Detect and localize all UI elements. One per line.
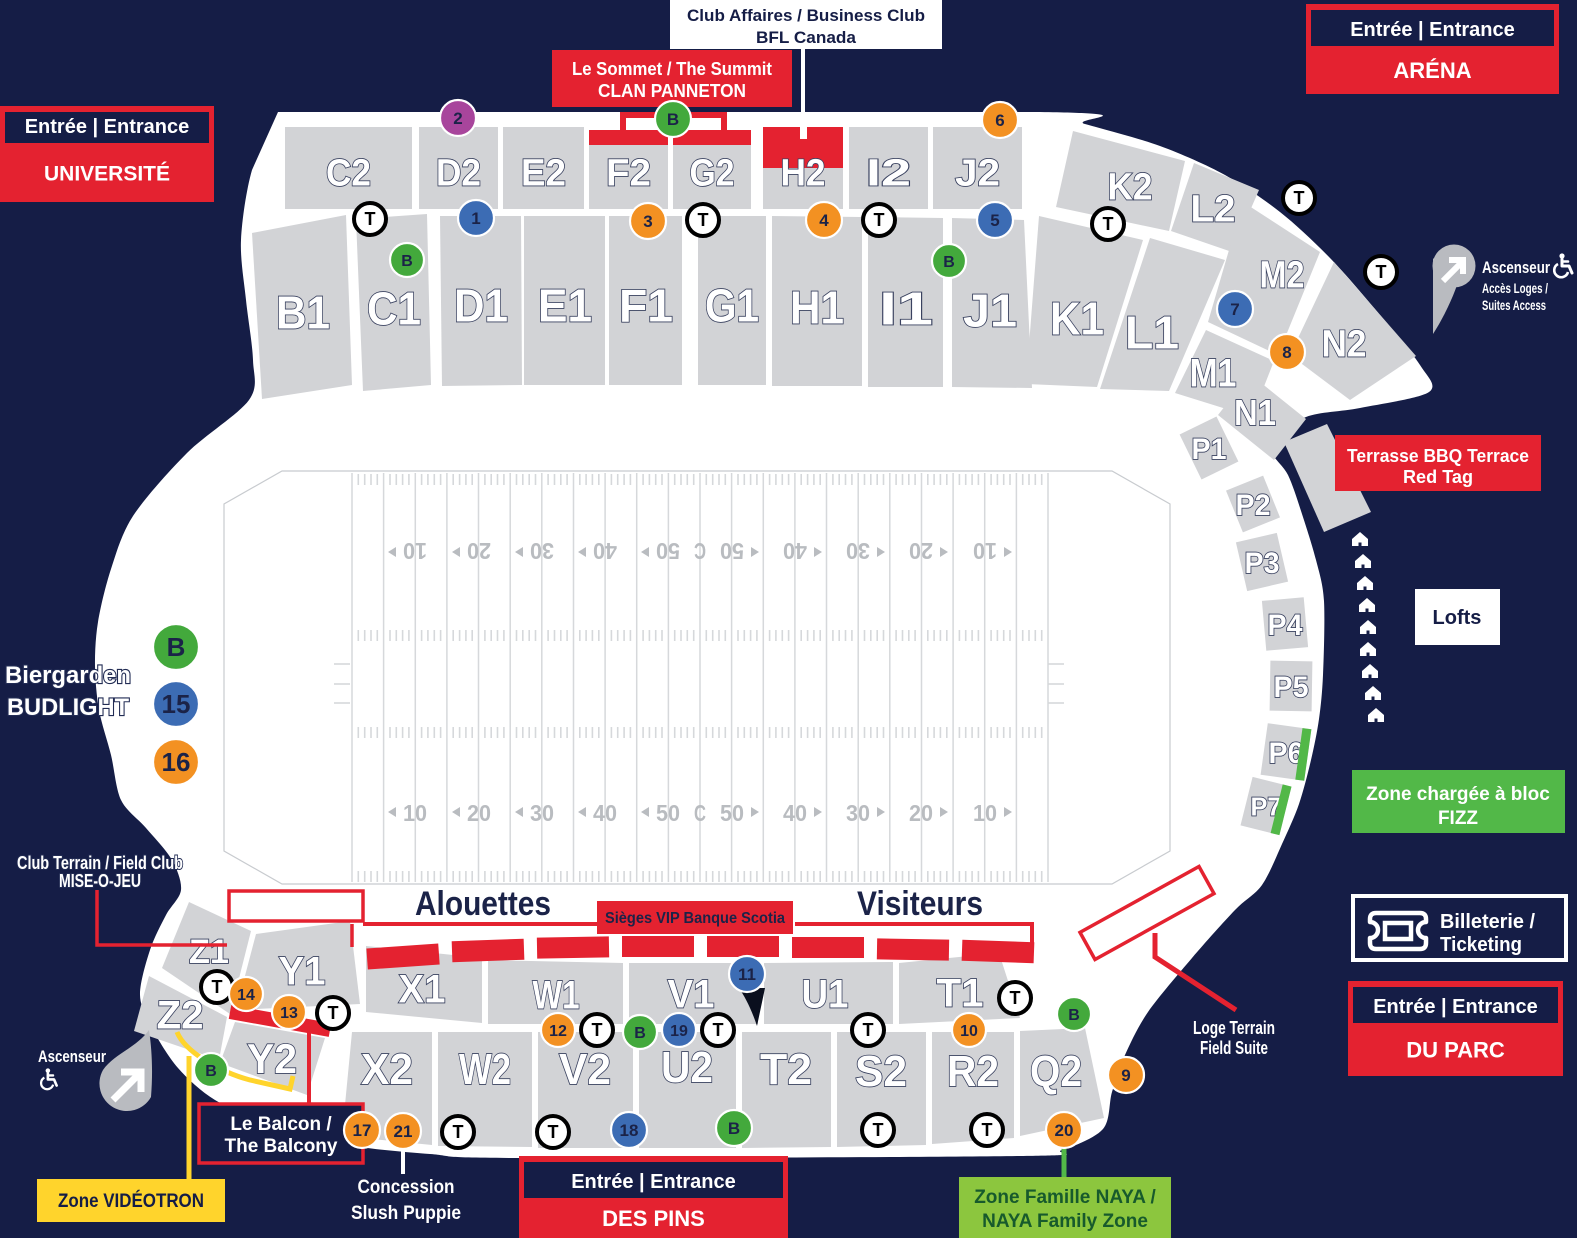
svg-text:S2: S2 [855,1047,907,1096]
svg-text:Loge Terrain: Loge Terrain [1193,1018,1275,1038]
svg-text:V1: V1 [668,972,715,1016]
svg-text:19: 19 [670,1023,688,1040]
svg-text:V2: V2 [559,1045,611,1094]
svg-text:T: T [713,1020,724,1040]
svg-text:K2: K2 [1108,167,1153,209]
svg-text:DU PARC: DU PARC [1406,1038,1505,1063]
svg-text:R2: R2 [947,1047,999,1096]
svg-text:BFL Canada: BFL Canada [756,28,857,47]
svg-text:X1: X1 [399,967,446,1011]
svg-text:ARÉNA: ARÉNA [1393,58,1471,83]
svg-text:30: 30 [846,538,870,564]
svg-text:J1: J1 [963,285,1017,337]
svg-text:T: T [873,1120,884,1140]
svg-text:Zone chargée à bloc: Zone chargée à bloc [1366,784,1550,805]
svg-text:40: 40 [783,800,807,826]
svg-text:Entrée | Entrance: Entrée | Entrance [1373,996,1538,1018]
svg-text:Y1: Y1 [279,949,326,993]
svg-text:P5: P5 [1274,671,1309,704]
svg-text:Z2: Z2 [157,993,204,1037]
svg-text:MISE-O-JEU: MISE-O-JEU [59,871,141,891]
svg-text:N1: N1 [1234,392,1276,433]
svg-text:W2: W2 [459,1045,511,1094]
svg-text:T: T [365,209,376,229]
svg-text:Terrasse BBQ Terrace: Terrasse BBQ Terrace [1347,446,1529,466]
svg-text:7: 7 [1230,300,1239,319]
svg-text:CLAN PANNETON: CLAN PANNETON [598,81,746,101]
svg-text:U1: U1 [802,972,849,1016]
svg-text:M1: M1 [1190,351,1237,395]
svg-text:Ascenseur: Ascenseur [38,1047,106,1066]
svg-text:40: 40 [783,538,807,564]
svg-text:UNIVERSITÉ: UNIVERSITÉ [44,163,170,186]
svg-text:Entrée | Entrance: Entrée | Entrance [25,116,190,138]
svg-text:Slush Puppie: Slush Puppie [351,1203,461,1224]
svg-text:Club Terrain / Field Club: Club Terrain / Field Club [17,853,183,873]
svg-text:10: 10 [973,800,997,826]
svg-text:B1: B1 [276,287,330,339]
svg-text:20: 20 [467,800,491,826]
svg-text:50: 50 [656,800,680,826]
svg-text:Alouettes: Alouettes [415,885,551,923]
svg-text:Zone Famille NAYA /: Zone Famille NAYA / [974,1187,1156,1208]
svg-text:B: B [167,632,186,662]
svg-text:M2: M2 [1260,255,1305,297]
svg-text:Lofts: Lofts [1433,607,1482,629]
svg-text:G2: G2 [690,153,735,195]
svg-text:Accès Loges /: Accès Loges / [1482,280,1548,296]
svg-text:F1: F1 [619,280,673,332]
svg-text:18: 18 [620,1121,639,1140]
svg-text:9: 9 [1121,1066,1130,1085]
svg-text:T: T [1376,262,1387,282]
svg-text:B: B [634,1025,646,1042]
svg-text:B: B [401,253,413,270]
svg-text:T: T [548,1122,559,1142]
svg-text:10: 10 [973,538,997,564]
svg-text:10: 10 [403,538,427,564]
svg-text:21: 21 [394,1122,413,1141]
svg-text:L2: L2 [1191,189,1236,231]
svg-text:C1: C1 [367,283,421,335]
svg-text:T: T [1103,214,1114,234]
svg-text:J2: J2 [955,153,1000,195]
svg-text:11: 11 [738,965,756,984]
svg-text:30: 30 [530,538,554,564]
svg-text:40: 40 [593,538,617,564]
svg-text:6: 6 [995,111,1004,130]
svg-text:Suites Access: Suites Access [1482,297,1546,313]
svg-text:B: B [205,1063,217,1080]
svg-text:Q2: Q2 [1030,1047,1082,1096]
svg-text:T: T [1294,188,1305,208]
svg-text:D2: D2 [436,153,481,195]
svg-text:Ascenseur: Ascenseur [1482,258,1550,277]
svg-text:E2: E2 [521,153,566,195]
svg-text:T1: T1 [937,971,984,1015]
svg-text:5: 5 [990,211,999,230]
svg-text:P2: P2 [1236,489,1271,522]
svg-text:E1: E1 [538,280,592,332]
svg-text:15: 15 [162,689,191,719]
svg-text:50: 50 [720,800,744,826]
svg-text:B: B [728,1119,740,1138]
svg-text:Billeterie /: Billeterie / [1440,911,1535,933]
svg-text:X2: X2 [361,1045,413,1094]
svg-text:Visiteurs: Visiteurs [857,885,983,923]
svg-text:Red Tag: Red Tag [1403,467,1473,487]
svg-text:P4: P4 [1268,609,1303,642]
svg-text:Biergarden: Biergarden [5,662,131,689]
svg-text:I1: I1 [879,283,933,335]
svg-text:G1: G1 [705,280,759,332]
svg-text:B: B [667,110,679,129]
svg-text:20: 20 [1055,1121,1074,1140]
svg-text:N2: N2 [1322,324,1367,366]
svg-text:Club Affaires / Business Club: Club Affaires / Business Club [687,6,925,25]
svg-text:Zone VIDÉOTRON: Zone VIDÉOTRON [58,1190,204,1212]
svg-text:T: T [453,1122,464,1142]
svg-text:Entrée | Entrance: Entrée | Entrance [1350,19,1515,41]
svg-text:W1: W1 [533,973,580,1017]
svg-text:T: T [698,210,709,230]
svg-text:T: T [592,1020,603,1040]
svg-text:H1: H1 [790,282,844,334]
svg-text:12: 12 [549,1023,567,1040]
svg-text:I2: I2 [866,153,911,195]
svg-text:14: 14 [237,987,255,1004]
svg-text:Le Sommet / The Summit: Le Sommet / The Summit [572,59,772,79]
svg-text:T: T [328,1003,339,1023]
svg-text:17: 17 [353,1121,372,1140]
svg-text:FIZZ: FIZZ [1438,808,1478,829]
svg-text:8: 8 [1282,343,1291,362]
svg-text:20: 20 [909,538,933,564]
svg-text:T: T [212,977,223,997]
svg-text:C: C [694,538,706,564]
svg-text:3: 3 [643,212,652,231]
svg-text:Field Suite: Field Suite [1200,1038,1268,1058]
svg-text:Le Balcon /: Le Balcon / [230,1114,332,1135]
svg-text:T: T [1010,988,1021,1008]
svg-text:40: 40 [593,800,617,826]
svg-text:K1: K1 [1050,293,1104,345]
svg-text:NAYA Family Zone: NAYA Family Zone [982,1211,1148,1232]
svg-text:C: C [694,800,706,826]
svg-text:10: 10 [960,1023,978,1040]
svg-text:U2: U2 [661,1043,713,1092]
svg-text:T: T [863,1020,874,1040]
svg-text:Z1: Z1 [189,933,229,971]
svg-text:P1: P1 [1192,433,1227,466]
svg-text:B: B [1068,1007,1080,1024]
svg-text:H2: H2 [781,153,826,195]
svg-text:P3: P3 [1245,547,1280,580]
svg-text:T2: T2 [760,1045,812,1094]
svg-text:Ticketing: Ticketing [1440,934,1522,956]
svg-text:13: 13 [280,1005,298,1022]
svg-text:T: T [982,1120,993,1140]
svg-text:Y2: Y2 [247,1035,297,1082]
svg-text:20: 20 [467,538,491,564]
svg-text:50: 50 [656,538,680,564]
svg-text:50: 50 [720,538,744,564]
svg-text:1: 1 [471,209,480,228]
svg-text:2: 2 [453,109,462,128]
svg-text:16: 16 [162,747,191,777]
svg-text:30: 30 [846,800,870,826]
svg-text:10: 10 [403,800,427,826]
svg-text:L1: L1 [1125,307,1179,359]
svg-text:The Balcony: The Balcony [225,1136,338,1157]
svg-text:BUDLIGHT: BUDLIGHT [7,694,129,721]
svg-text:20: 20 [909,800,933,826]
svg-text:B: B [943,254,955,271]
svg-text:Concession: Concession [358,1177,455,1198]
svg-text:DES PINS: DES PINS [602,1206,705,1231]
svg-text:Sièges VIP Banque Scotia: Sièges VIP Banque Scotia [605,910,785,927]
svg-text:C2: C2 [326,153,371,195]
svg-text:Entrée | Entrance: Entrée | Entrance [571,1171,736,1193]
svg-text:T: T [874,210,885,230]
svg-text:D1: D1 [454,280,508,332]
svg-text:F2: F2 [606,153,651,195]
svg-text:4: 4 [819,211,829,230]
svg-text:30: 30 [530,800,554,826]
